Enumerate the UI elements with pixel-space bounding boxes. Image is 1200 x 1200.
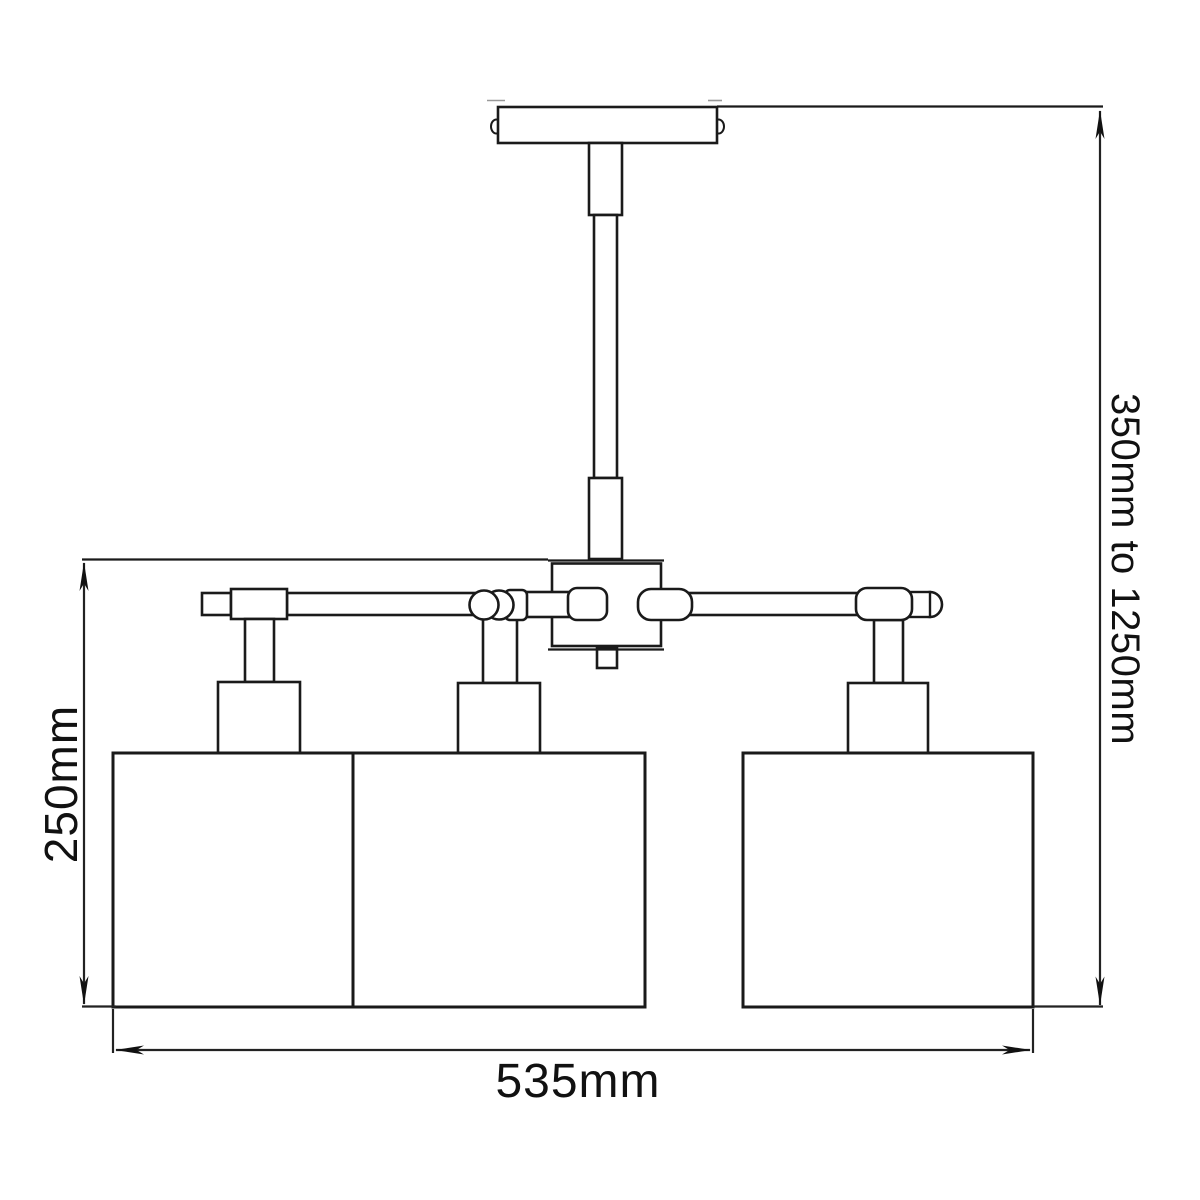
technical-drawing-page: 250mm 350mm to 1250mm 535mm bbox=[0, 0, 1200, 1200]
ceiling-canopy bbox=[498, 107, 717, 143]
right-arm-hub-connector bbox=[638, 589, 692, 620]
light-fixture bbox=[82, 101, 1103, 1008]
left-arm-endcap bbox=[202, 593, 231, 615]
left-candle-cup bbox=[218, 682, 300, 753]
lamp-shade-left bbox=[113, 753, 353, 1007]
dimension-label-width: 535mm bbox=[495, 1055, 660, 1108]
front-arm-hub-boss bbox=[568, 588, 607, 620]
hub-bottom-finial bbox=[597, 648, 617, 668]
dimension-drawing-svg: 250mm 350mm to 1250mm 535mm bbox=[0, 0, 1200, 1200]
right-arm-elbow bbox=[856, 588, 912, 620]
suspension-stem-upper bbox=[589, 143, 622, 215]
dimension-width bbox=[113, 1009, 1033, 1055]
lamp-shade-right bbox=[743, 753, 1033, 1007]
rod-collar bbox=[589, 478, 622, 559]
front-arm bbox=[458, 588, 607, 753]
left-arm-elbow bbox=[231, 589, 287, 619]
dimension-drop-height bbox=[1033, 110, 1105, 1007]
dimension-label-drop-height: 350mm to 1250mm bbox=[1103, 393, 1147, 745]
right-candle-cup bbox=[848, 683, 928, 753]
front-arm-cap bbox=[470, 591, 499, 620]
center-candle-cup bbox=[458, 683, 540, 753]
left-arm-stem bbox=[245, 619, 274, 682]
suspension-rod bbox=[594, 215, 617, 478]
lamp-shades bbox=[113, 753, 1033, 1007]
front-arm-tube bbox=[522, 592, 570, 617]
right-arm-stem bbox=[874, 620, 903, 683]
front-arm-stem bbox=[483, 617, 517, 683]
lamp-shade-center bbox=[353, 753, 645, 1007]
dimension-label-body-height: 250mm bbox=[35, 705, 87, 863]
